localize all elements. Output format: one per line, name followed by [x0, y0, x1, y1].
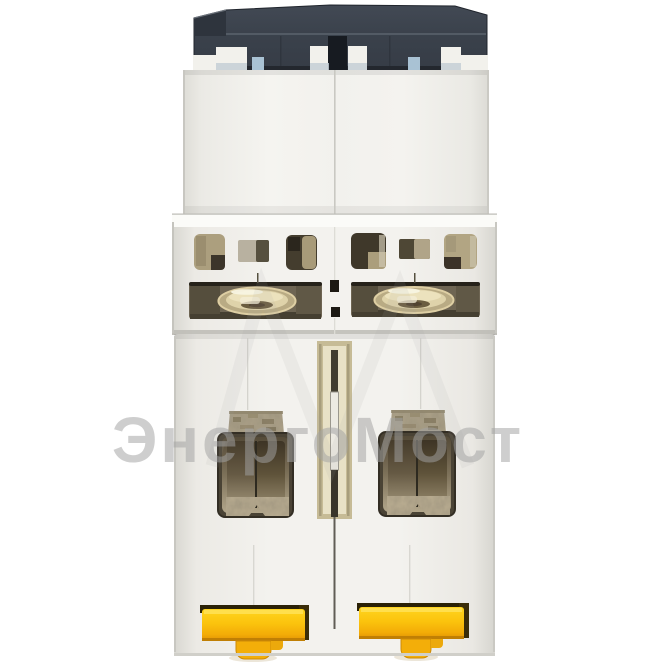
svg-text:ЭнергоМост: ЭнергоМост: [112, 404, 524, 476]
